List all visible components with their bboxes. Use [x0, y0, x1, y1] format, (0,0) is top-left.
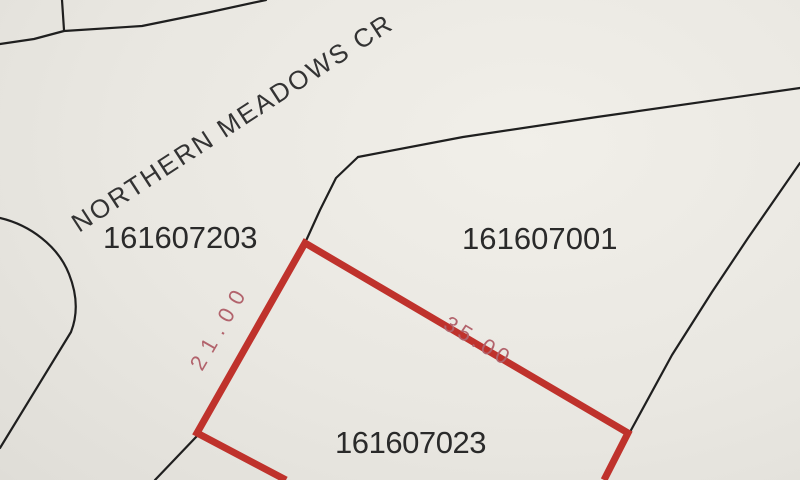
- street-name-label: NORTHERN MEADOWS CR: [66, 9, 397, 238]
- parcel-label-161607203: 161607203: [103, 220, 258, 255]
- boundary-line-bottom-left: [155, 436, 197, 480]
- parcel-001-west-boundary: [305, 157, 358, 243]
- plat-map: NORTHERN MEADOWS CR 161607203 161607001 …: [0, 0, 800, 480]
- parcel-label-161607001: 161607001: [462, 221, 618, 256]
- parcel-001-east-boundary: [630, 163, 800, 432]
- dimension-label-northeast: 35.00: [439, 311, 514, 370]
- street-edge-southeast: [358, 88, 800, 157]
- parcel-label-161607023: 161607023: [335, 425, 487, 460]
- street-edge-northwest: [0, 0, 266, 44]
- corner-line-top-left: [62, 0, 64, 30]
- culdesac-curve: [0, 218, 76, 448]
- plat-map-canvas: NORTHERN MEADOWS CR 161607203 161607001 …: [0, 0, 800, 480]
